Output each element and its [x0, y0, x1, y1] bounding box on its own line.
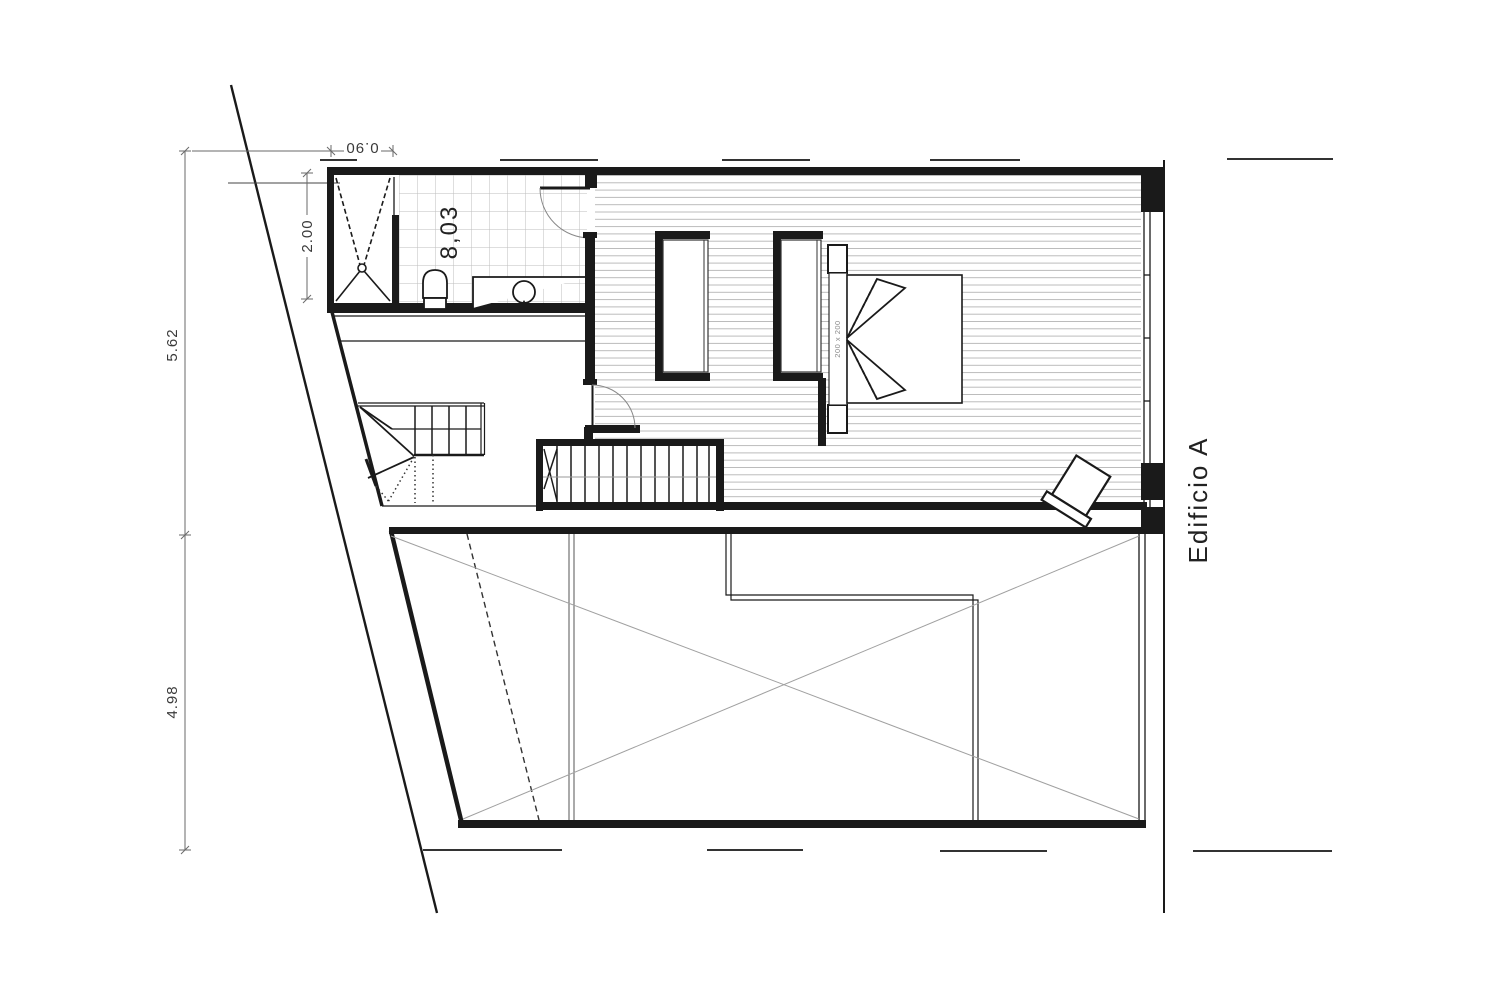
wardrobe-1 — [655, 231, 710, 381]
window-right — [1144, 212, 1150, 463]
stair-right-flight — [536, 439, 724, 511]
nightstand-bottom — [828, 405, 847, 433]
wall-door-jamb — [585, 167, 597, 188]
wall-cap — [583, 379, 597, 385]
floor-joint-line — [569, 534, 574, 820]
wall-left-slanted-lower — [391, 531, 462, 824]
stair-break-mark — [544, 449, 557, 501]
street-line-bottom — [423, 850, 1332, 851]
void-dashed-offset-line — [467, 534, 539, 820]
wall-void-right — [1139, 533, 1145, 820]
toilet-symbol — [423, 270, 447, 309]
wall-shower-partition — [392, 215, 399, 303]
bed-mattress — [847, 275, 962, 403]
shower-symbol — [336, 178, 390, 301]
floor-plan-sheet: 5.62 4.98 0.90 2.00 — [0, 0, 1500, 1000]
bed-size-label: 200 x 200 — [833, 320, 842, 357]
wall-bathroom-left — [327, 167, 334, 313]
dimension-left-lower: 4.98 — [164, 685, 181, 718]
stair-treads — [415, 406, 466, 455]
wall-corner-top-right — [1141, 167, 1163, 212]
wall-bathroom-bottom — [327, 303, 590, 313]
dimension-annotations: 5.62 4.98 0.90 2.00 — [164, 139, 397, 854]
dimension-bathroom-depth: 2.00 — [299, 219, 316, 252]
void-opening-outline — [726, 534, 978, 822]
double-height-void — [389, 527, 1163, 828]
dimension-shower-width: 0.90 — [345, 139, 378, 156]
wall-top — [327, 167, 1141, 175]
bathroom-area-label: 8,03 — [436, 205, 463, 260]
wall-cap — [583, 232, 597, 238]
dimension-left-upper: 5.62 — [164, 328, 181, 361]
slab-edge-top — [389, 527, 1163, 534]
wall-corner-bottom-right — [1141, 463, 1163, 500]
sink-symbol — [513, 281, 535, 303]
void-cross-marker — [391, 536, 1139, 819]
wall-bedroom-partition — [585, 232, 595, 385]
wall-void-bottom — [458, 820, 1146, 828]
nightstand-top — [828, 245, 847, 273]
wall-bed-alcove — [818, 378, 826, 446]
building-label: Edificio A — [1183, 437, 1213, 564]
stair-treads — [557, 446, 709, 502]
street-line-top — [320, 159, 1333, 160]
floor-plan-drawing: 5.62 4.98 0.90 2.00 — [0, 0, 1500, 1000]
